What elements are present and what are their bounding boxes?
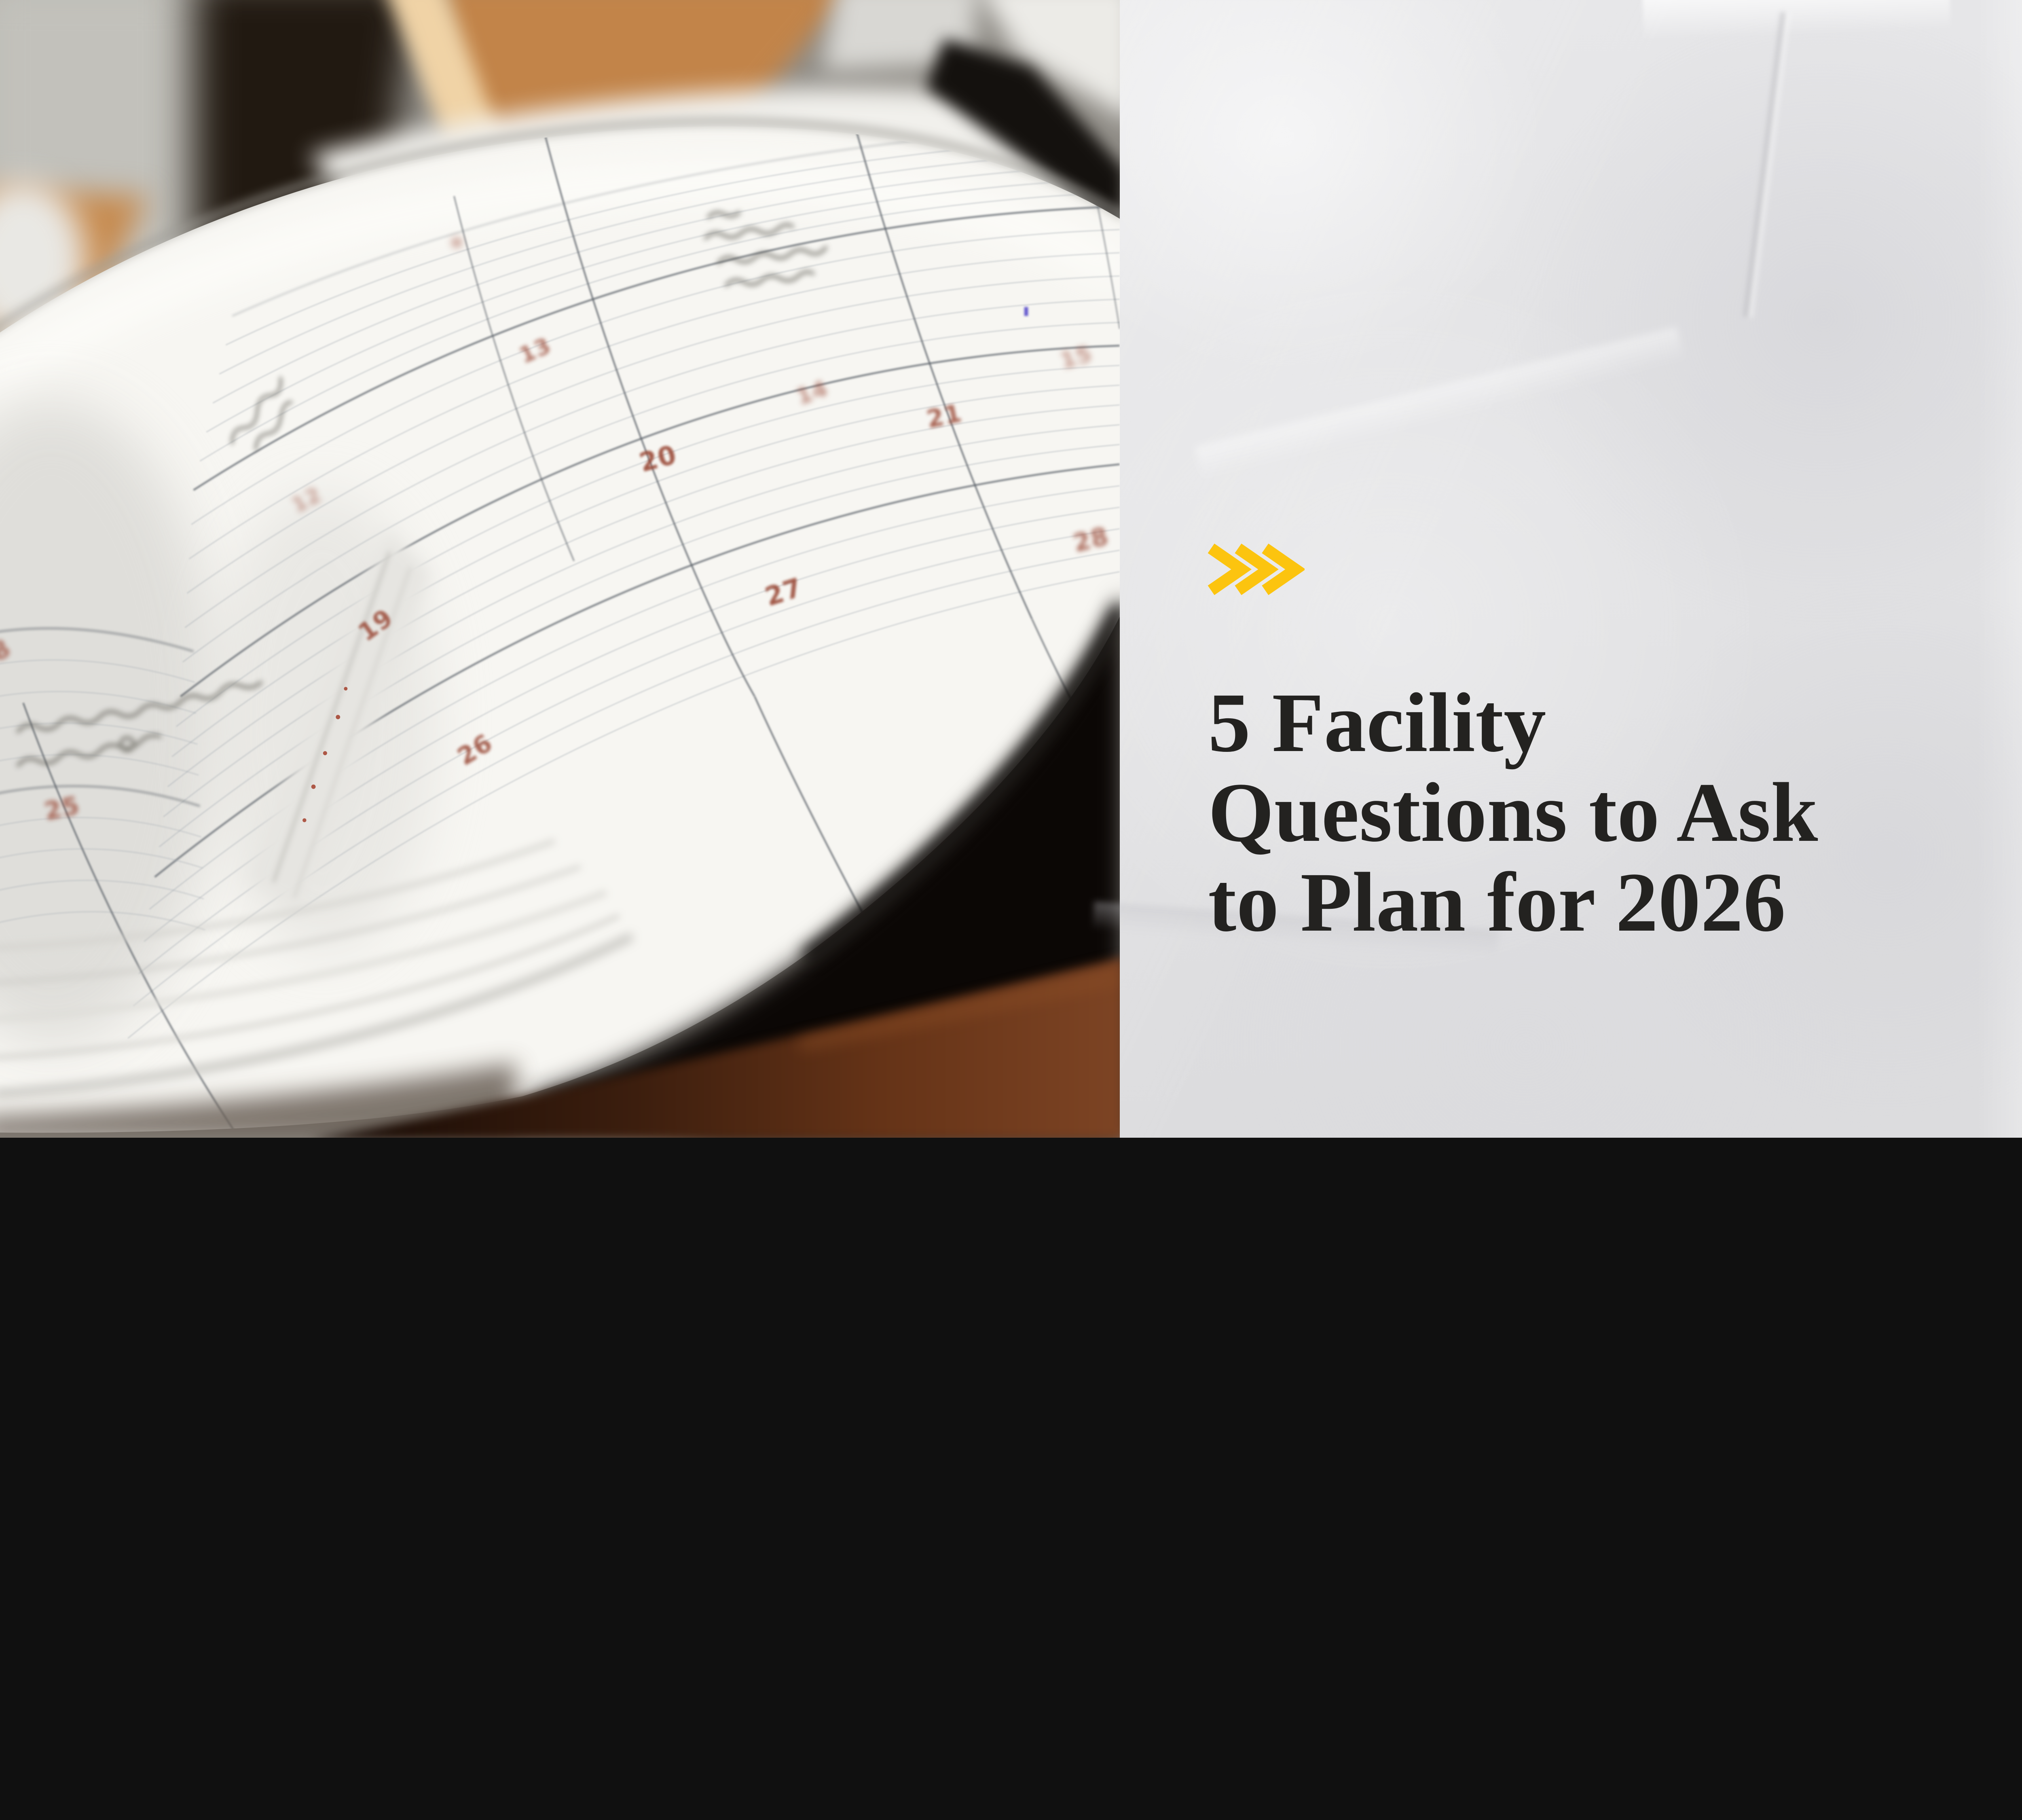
chevron-right-icon <box>1211 548 1242 590</box>
paper-crease <box>1742 12 1792 318</box>
faint-date-smudge <box>451 237 462 248</box>
planner-photo-illustration: 182512131415192021262728 <box>0 0 1120 1138</box>
headline-line-1: 5 Facility <box>1208 678 1818 768</box>
triple-chevron-right-icon <box>1203 542 1305 597</box>
headline-line-2: Questions to Ask <box>1208 768 1818 857</box>
paper-crease <box>1642 0 1950 40</box>
headline-line-3: to Plan for 2026 <box>1208 857 1818 947</box>
text-panel: 5 Facility Questions to Ask to Plan for … <box>1120 0 2022 1138</box>
hero-banner: 182512131415192021262728 <box>0 0 2022 1138</box>
blue-pen-mark <box>1024 307 1028 316</box>
headline: 5 Facility Questions to Ask to Plan for … <box>1208 678 1818 947</box>
planner-photo: 182512131415192021262728 <box>0 0 1120 1138</box>
paper-crease <box>1195 327 1685 480</box>
